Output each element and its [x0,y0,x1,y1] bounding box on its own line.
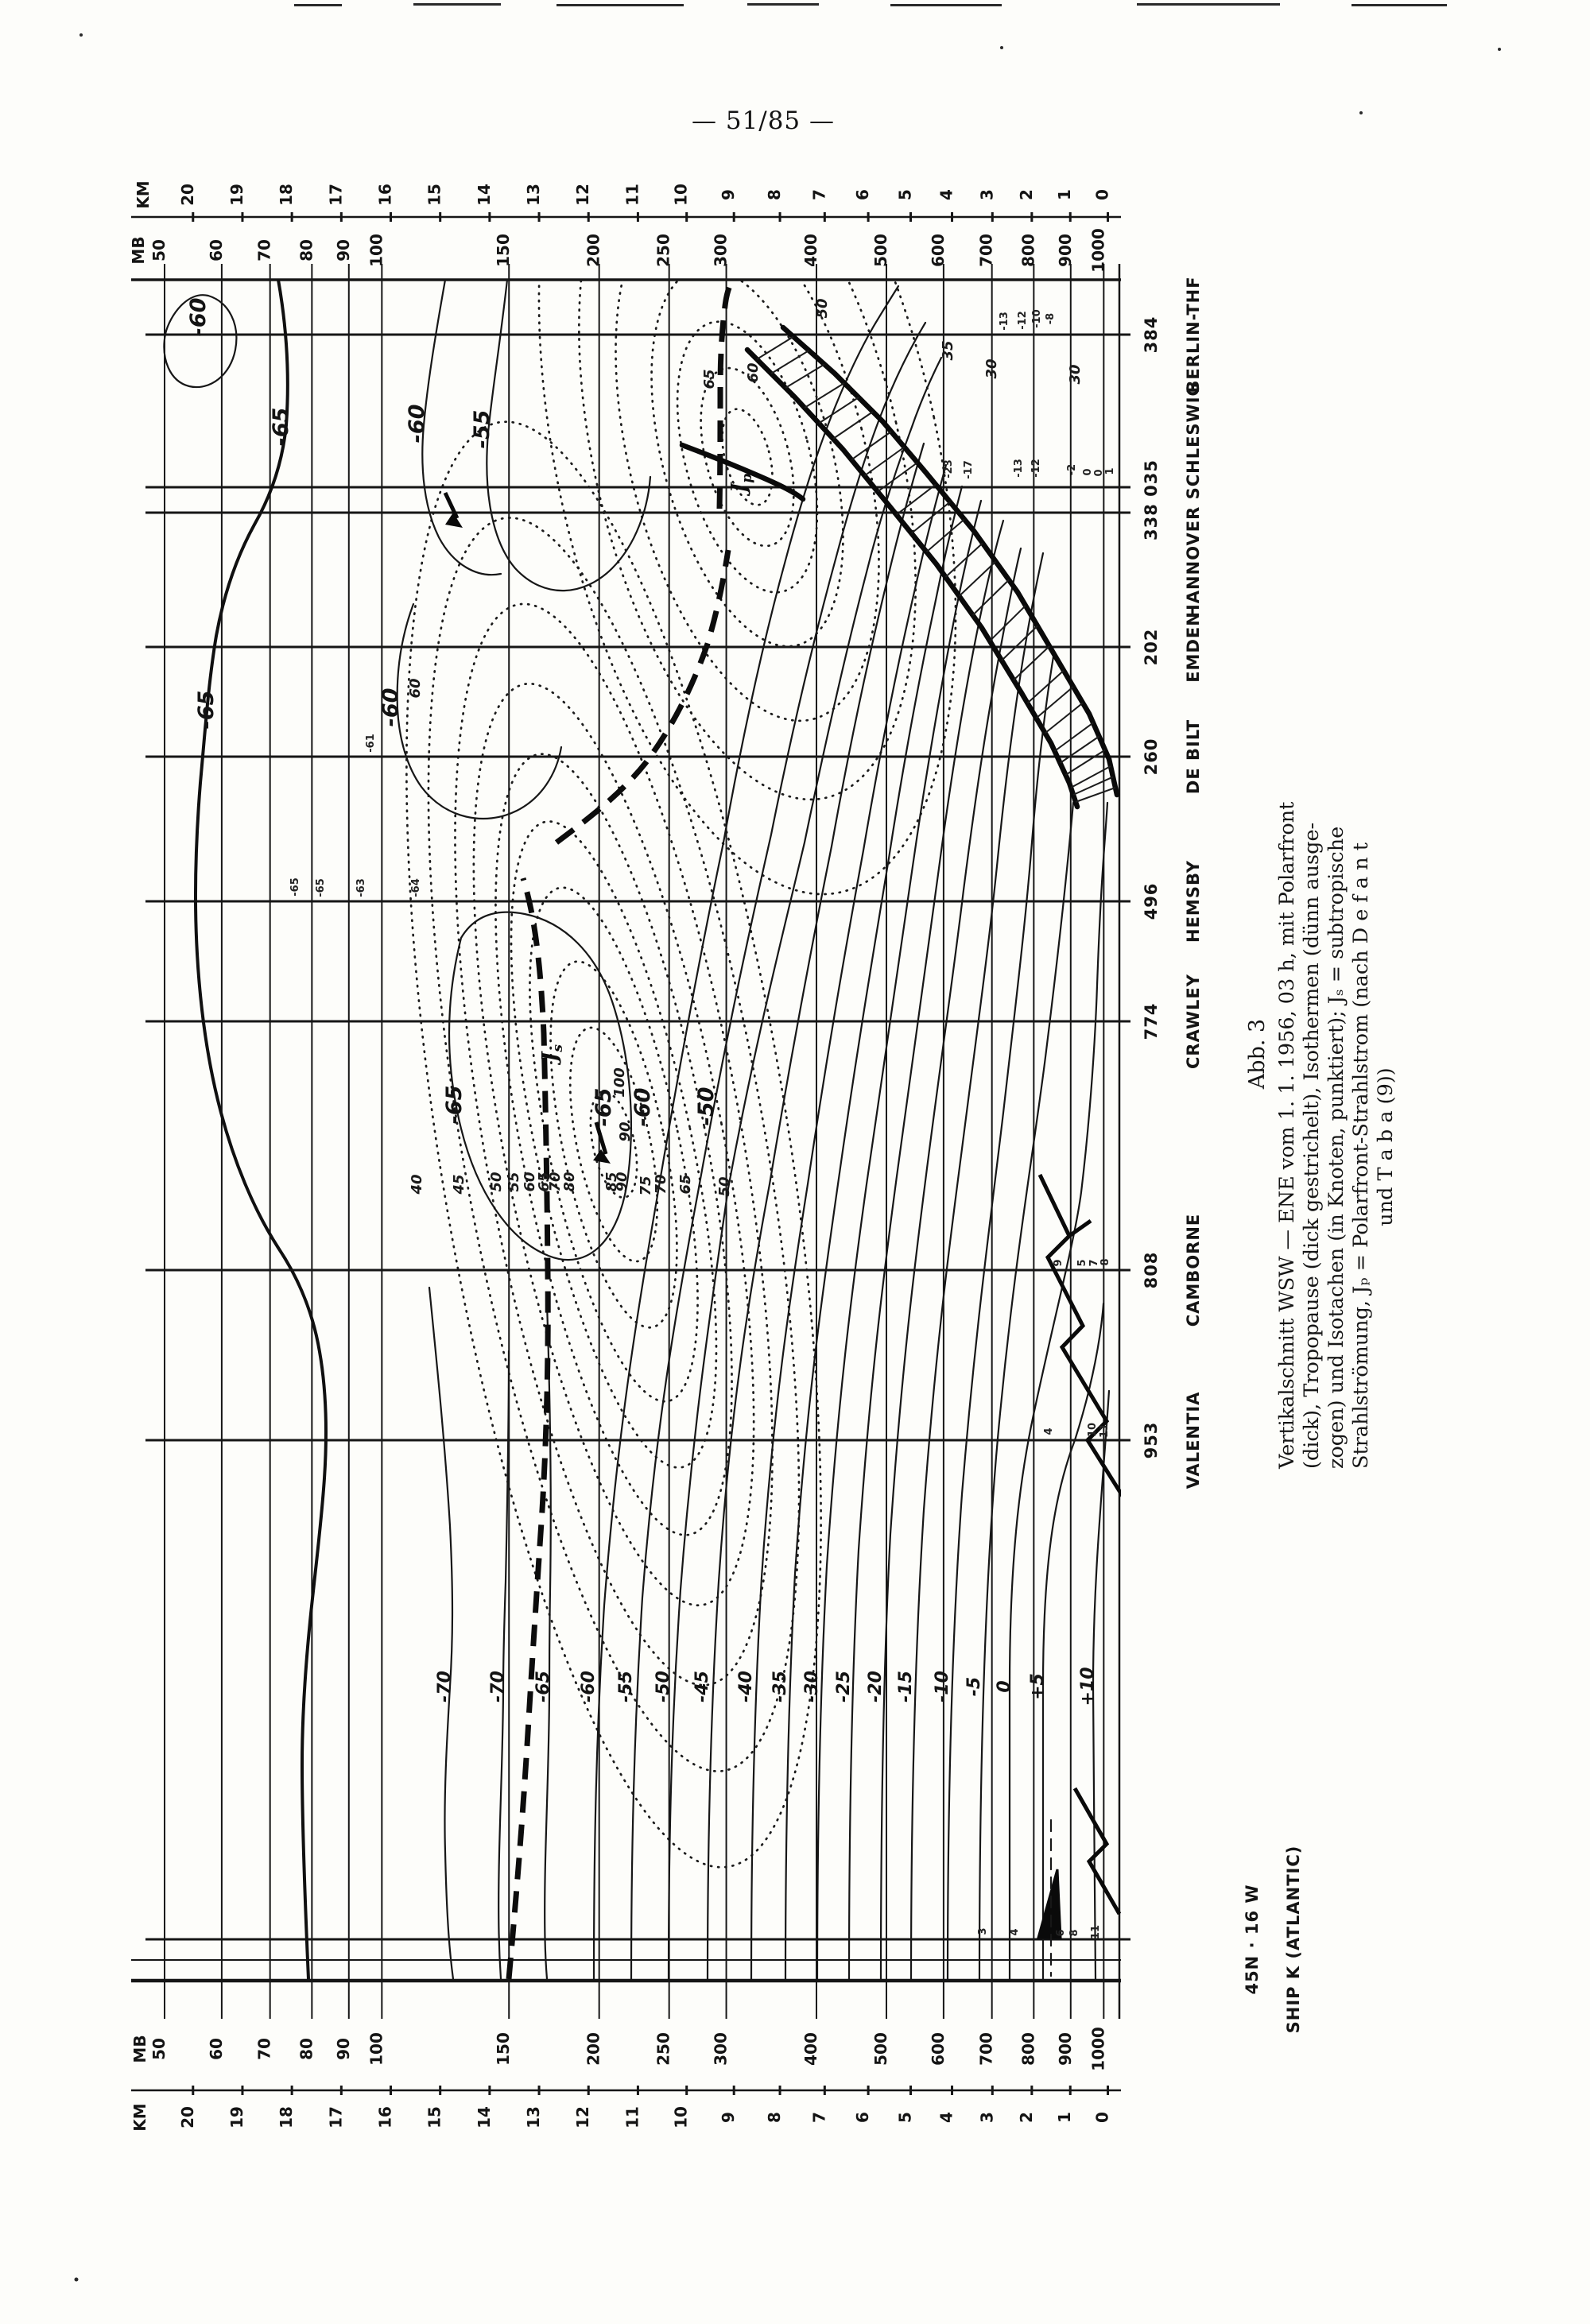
front-hatch-stroke [805,383,844,408]
plotted-value: -61 [365,734,377,753]
km-tick-label-bottom: 13 [524,2106,543,2128]
isotach-label: 100 [611,1067,628,1098]
km-tick-label-top: 12 [573,184,592,206]
isotach-label: 60 [745,362,762,382]
front-hatch-stroke [897,485,936,515]
plotted-value: -12 [1017,311,1029,330]
mb-tick-label-bottom: 50 [149,2038,169,2060]
caption-line: und T a b a (9)) [1374,825,1398,1469]
front-hatch-stroke [1014,646,1049,680]
km-tick-label-bottom: 9 [719,2112,738,2123]
km-tick-label-top: 14 [475,184,494,206]
station-name: BERLIN-THF [1184,276,1203,393]
figure-number: Abb. 3 [1245,1001,1278,1106]
plotted-value: -2 [1066,464,1078,475]
km-tick-label-bottom: 10 [672,2106,691,2128]
isotach-label: 75 [638,1176,654,1195]
isotach-label: 65 [701,369,718,389]
km-tick-label-bottom: 4 [937,2112,956,2123]
plotted-value: 4 [1009,1928,1021,1935]
front-hatch-stroke [819,397,859,424]
plotted-value: 0 [1093,469,1105,476]
jet-label: Js [538,1044,566,1066]
front-hatch-stroke [771,351,809,374]
mb-tick-label-bottom: 100 [366,2032,386,2066]
isotherm-label: -65 [269,408,293,447]
km-tick-label-top: 3 [977,189,996,200]
front-hatch-stroke [757,337,793,359]
plotted-value: -12 [1030,459,1042,478]
mb-tick-label-bottom: 800 [1018,2032,1037,2066]
isotach-label: 50 [488,1172,505,1191]
caption-line: Vertikalschnitt WSW — ENE vom 1. 1. 1956… [1275,825,1300,1469]
isotherm-label: -30 [802,1671,822,1702]
station-code: 202 [1142,629,1161,666]
caption-line: Strahlströmung, Jₚ = Polarfront-Strahlst… [1349,825,1374,1469]
isotach-label: 70 [653,1174,669,1194]
km-tick-label-bottom: 5 [895,2112,914,2123]
isotherm-label: -60 [186,298,211,337]
mb-tick-label-top: 80 [297,239,316,261]
front-hatch-stroke [865,447,905,476]
plotted-value: -10 [1031,309,1043,328]
caption-line: zogen) und Isotachen (in Knoten, punktie… [1324,825,1349,1469]
isotach-label: 65 [677,1174,694,1194]
front-hatch-stroke [926,519,964,552]
mb-tick-label-bottom: 900 [1056,2032,1075,2066]
isotherm-label: -55 [616,1671,636,1702]
plotted-value: -8 [1045,313,1057,324]
km-tick-label-bottom: 2 [1017,2112,1036,2123]
km-tick-label-bottom: 7 [809,2112,828,2123]
front-hatch-stroke [1002,626,1037,661]
km-tick-label-bottom: 1 [1055,2112,1074,2123]
isotherm-label: -60 [378,688,403,727]
mb-tick-label-top: 300 [712,234,731,267]
isotherm-label: -35 [770,1671,790,1702]
mb-tick-label-top: 70 [255,239,274,261]
km-tick-label-top: 7 [809,189,828,200]
isotach-label: 50 [716,1176,733,1196]
isotherm-label: -10 [933,1671,952,1702]
km-tick-label-top: 15 [425,184,444,206]
station-name: CRAWLEY [1184,974,1203,1069]
km-tick-label-top: 9 [719,189,738,200]
km-tick-label-bottom: 6 [853,2112,872,2123]
km-tick-label-top: 11 [622,184,642,206]
km-tick-label-bottom: 18 [277,2106,296,2128]
station-code: 338 035 [1142,459,1161,540]
km-axis-unit-top: KM [134,180,153,208]
isotherm-lines [594,286,1109,1979]
isotherm-label: -70 [435,1671,455,1702]
station-name: EMDEN [1184,611,1203,683]
isotherm-label: -65 [194,691,219,730]
station-code: 496 [1142,883,1161,920]
plotted-value: -23 [943,459,955,478]
mb-tick-label-bottom: 60 [207,2038,226,2060]
isotherm-label: -20 [866,1671,886,1702]
km-tick-label-bottom: 15 [425,2106,444,2128]
front-hatch-stroke [1061,737,1099,764]
km-tick-label-bottom: 19 [227,2106,246,2128]
polar-front-lower-edge [747,350,1077,807]
isotherm-label: -40 [736,1671,756,1702]
isotherm-label: -50 [653,1671,673,1702]
isotherm-label: +10 [1078,1667,1098,1706]
isotach-label: 40 [409,1174,425,1195]
mb-tick-label-bottom: 200 [584,2032,603,2066]
isotherm-label: -25 [834,1671,854,1702]
station-name: HANNOVER SCHLESWIG [1184,382,1203,618]
isotherm-label: -60 [579,1671,599,1702]
front-hatch-stroke [785,364,824,388]
plotted-value: 11 [1090,1925,1102,1939]
isotach-label: 55 [506,1172,522,1191]
isotherm-label: -65 [533,1671,553,1702]
plotted-value: 7 [1088,1259,1100,1266]
mb-tick-label-bottom: 250 [654,2032,673,2066]
mb-axis-unit-top: MB [129,236,148,264]
isotach-label: 45 [451,1174,467,1195]
front-hatch-stroke [1055,722,1093,751]
plotted-value: 3 [977,1927,989,1935]
station-name: VALENTIA [1184,1392,1203,1489]
caption-line: (dick), Tropopause (dick gestrichelt), I… [1300,825,1324,1469]
isotach-label: 35 [940,340,956,360]
km-tick-label-top: 6 [853,189,872,200]
mb-tick-label-top: 90 [334,239,353,261]
mb-tick-label-bottom: 150 [494,2032,513,2066]
isotherm-label: 0 [995,1680,1014,1692]
mb-tick-label-bottom: 700 [977,2032,996,2066]
km-tick-label-bottom: 12 [573,2106,592,2128]
km-tick-label-top: 10 [672,184,691,206]
km-tick-label-top: 0 [1093,189,1112,200]
km-tick-label-top: 16 [376,184,395,206]
isotherm-label: -5 [964,1677,984,1696]
station-name: SHIP K (ATLANTIC) [1284,1846,1303,2034]
plotted-value: 1 [1104,467,1116,474]
station-code: 953 [1142,1422,1161,1459]
isotherm-label: -50 [694,1087,719,1126]
station-code: 45N · 16 W [1243,1884,1262,1994]
isotherm-label: -65 [442,1086,467,1125]
plotted-value: 0 [1082,468,1094,475]
km-tick-label-top: 19 [227,184,246,206]
isotherm-label: -60 [405,405,429,443]
plotted-value: -64 [410,878,422,897]
mb-tick-label-bottom: 1000 [1088,2027,1107,2071]
front-hatch-stroke [1071,766,1111,788]
km-tick-label-top: 18 [277,184,296,206]
mb-tick-label-top: 600 [929,234,948,267]
figure-caption: Vertikalschnitt WSW — ENE vom 1. 1. 1956… [1275,825,1410,1469]
isotach-label: 30 [1067,364,1084,384]
mb-tick-label-top: 200 [584,234,603,267]
plotted-value: -17 [963,460,975,479]
mb-tick-label-top: 50 [149,239,169,261]
mb-tick-label-bottom: 400 [801,2032,820,2066]
front-hatch-stroke [1076,788,1115,802]
front-hatch-stroke [833,412,873,439]
mb-tick-label-top: 700 [977,234,996,267]
isotach-label: 90 [614,1172,630,1191]
mb-tick-label-top: 60 [207,239,226,261]
km-tick-label-top: 2 [1017,189,1036,200]
plotted-value: 8 [1099,1258,1111,1265]
isotherm-label: -45 [692,1671,712,1702]
polar-front-upper-edge [783,327,1117,795]
front-hatch-stroke [1027,671,1064,703]
km-tick-label-top: 1 [1055,189,1074,200]
station-name: HEMSBY [1184,860,1203,943]
front-hatch-stroke [1045,703,1083,733]
isotherm-label: +5 [1028,1673,1048,1700]
km-tick-label-bottom: 8 [765,2112,784,2123]
km-tick-label-top: 5 [895,189,914,200]
km-tick-label-top: 17 [326,184,345,206]
isotach-label: 90 [617,1121,634,1141]
km-tick-label-bottom: 17 [326,2106,345,2128]
mb-tick-label-top: 100 [366,234,386,267]
jet-label: Jp [727,474,755,497]
km-tick-label-bottom: 0 [1093,2112,1112,2123]
front-hatch-stroke [1065,750,1105,775]
scanned-paper-page: — 51/85 — [0,0,1590,2324]
mb-tick-label-top: 250 [654,234,673,267]
mb-tick-label-bottom: 70 [255,2038,274,2060]
mb-tick-label-top: 900 [1056,234,1075,267]
isotach-label: 50 [814,298,831,318]
plotted-value: 10 [1087,1423,1099,1437]
km-tick-label-bottom: 3 [977,2112,996,2123]
station-code: 808 [1142,1252,1161,1289]
isotach-label: 60 [407,678,424,698]
plotted-value: -63 [355,878,367,897]
front-hatch-stroke [851,432,891,459]
label-layer: 384BERLIN-THF338 035HANNOVER SCHLESWIG20… [129,180,1303,2131]
km-axis-unit-bottom: KM [130,2103,149,2131]
mb-tick-label-bottom: 300 [712,2032,731,2066]
km-tick-label-top: 20 [178,184,197,206]
mb-tick-label-top: 800 [1018,234,1037,267]
mb-axis-unit-bottom: MB [130,2035,149,2063]
plotted-value: 4 [1043,1427,1055,1435]
isotherm-label: -55 [470,410,494,449]
isotach-label: 80 [561,1172,578,1191]
isotach-label: 30 [983,358,1000,378]
isotach-lines-js [327,395,901,1894]
mb-tick-label-bottom: 80 [297,2038,316,2060]
isotherm-label: -60 [630,1088,655,1127]
isotherm-label: -70 [488,1671,508,1702]
plotted-value: -65 [289,877,301,897]
plotted-value: -65 [315,878,327,897]
polar-front-band [747,327,1117,807]
km-tick-label-top: 4 [937,189,956,200]
plotted-value: 5 [1076,1259,1088,1266]
mb-tick-label-bottom: 600 [929,2032,948,2066]
plotted-value: 8 [1068,1929,1080,1936]
isotherm-label: -15 [896,1671,916,1702]
station-code: 384 [1142,316,1161,354]
mb-tick-label-top: 150 [494,234,513,267]
station-code: 260 [1142,738,1161,776]
plotted-value: 11 [1099,1423,1111,1438]
plotted-value: -13 [999,312,1010,331]
mb-tick-label-top: 1000 [1088,228,1107,273]
mb-tick-label-top: 500 [871,234,890,267]
km-tick-label-top: 13 [524,184,543,206]
front-hatch-stroke [1073,777,1113,796]
station-code: 774 [1142,1003,1161,1040]
mb-tick-label-bottom: 500 [871,2032,890,2066]
plotted-value: -13 [1013,459,1025,478]
plotted-value: 6 [1055,1929,1067,1936]
station-name: CAMBORNE [1184,1214,1203,1327]
km-tick-label-bottom: 16 [376,2106,395,2128]
front-hatch-stroke [1037,687,1074,719]
isotherm-lines-stratosphere [164,280,650,1979]
km-tick-label-bottom: 14 [475,2106,494,2128]
km-tick-label-top: 8 [765,189,784,200]
station-name: DE BILT [1184,719,1203,794]
plotted-value: 9 [1053,1259,1065,1266]
km-tick-label-bottom: 11 [622,2106,642,2128]
mb-tick-label-bottom: 90 [334,2038,353,2060]
front-hatch-stroke [973,580,1009,615]
mb-tick-label-top: 400 [801,234,820,267]
km-tick-label-bottom: 20 [178,2106,197,2128]
